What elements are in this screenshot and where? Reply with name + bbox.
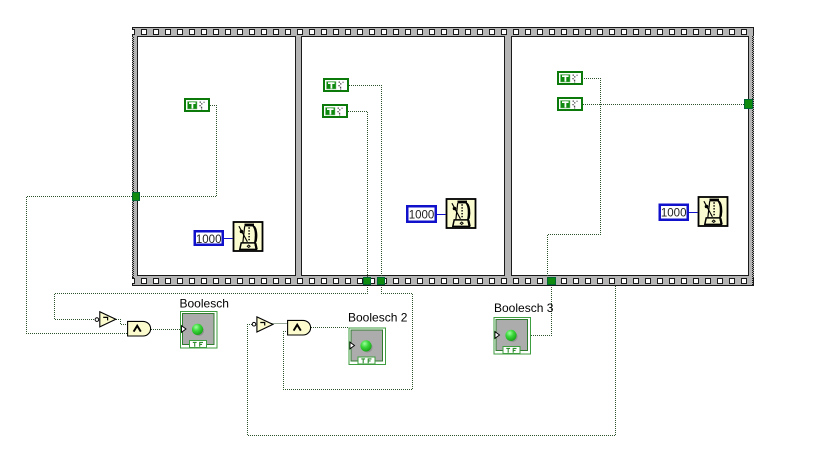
svg-text:Boolesch 3: Boolesch 3	[494, 301, 554, 315]
svg-text:1000: 1000	[661, 207, 687, 219]
svg-text:Boolesch: Boolesch	[180, 297, 229, 311]
svg-text:1000: 1000	[409, 209, 435, 221]
svg-text:Boolesch 2: Boolesch 2	[348, 311, 408, 325]
svg-text:1000: 1000	[196, 234, 222, 246]
